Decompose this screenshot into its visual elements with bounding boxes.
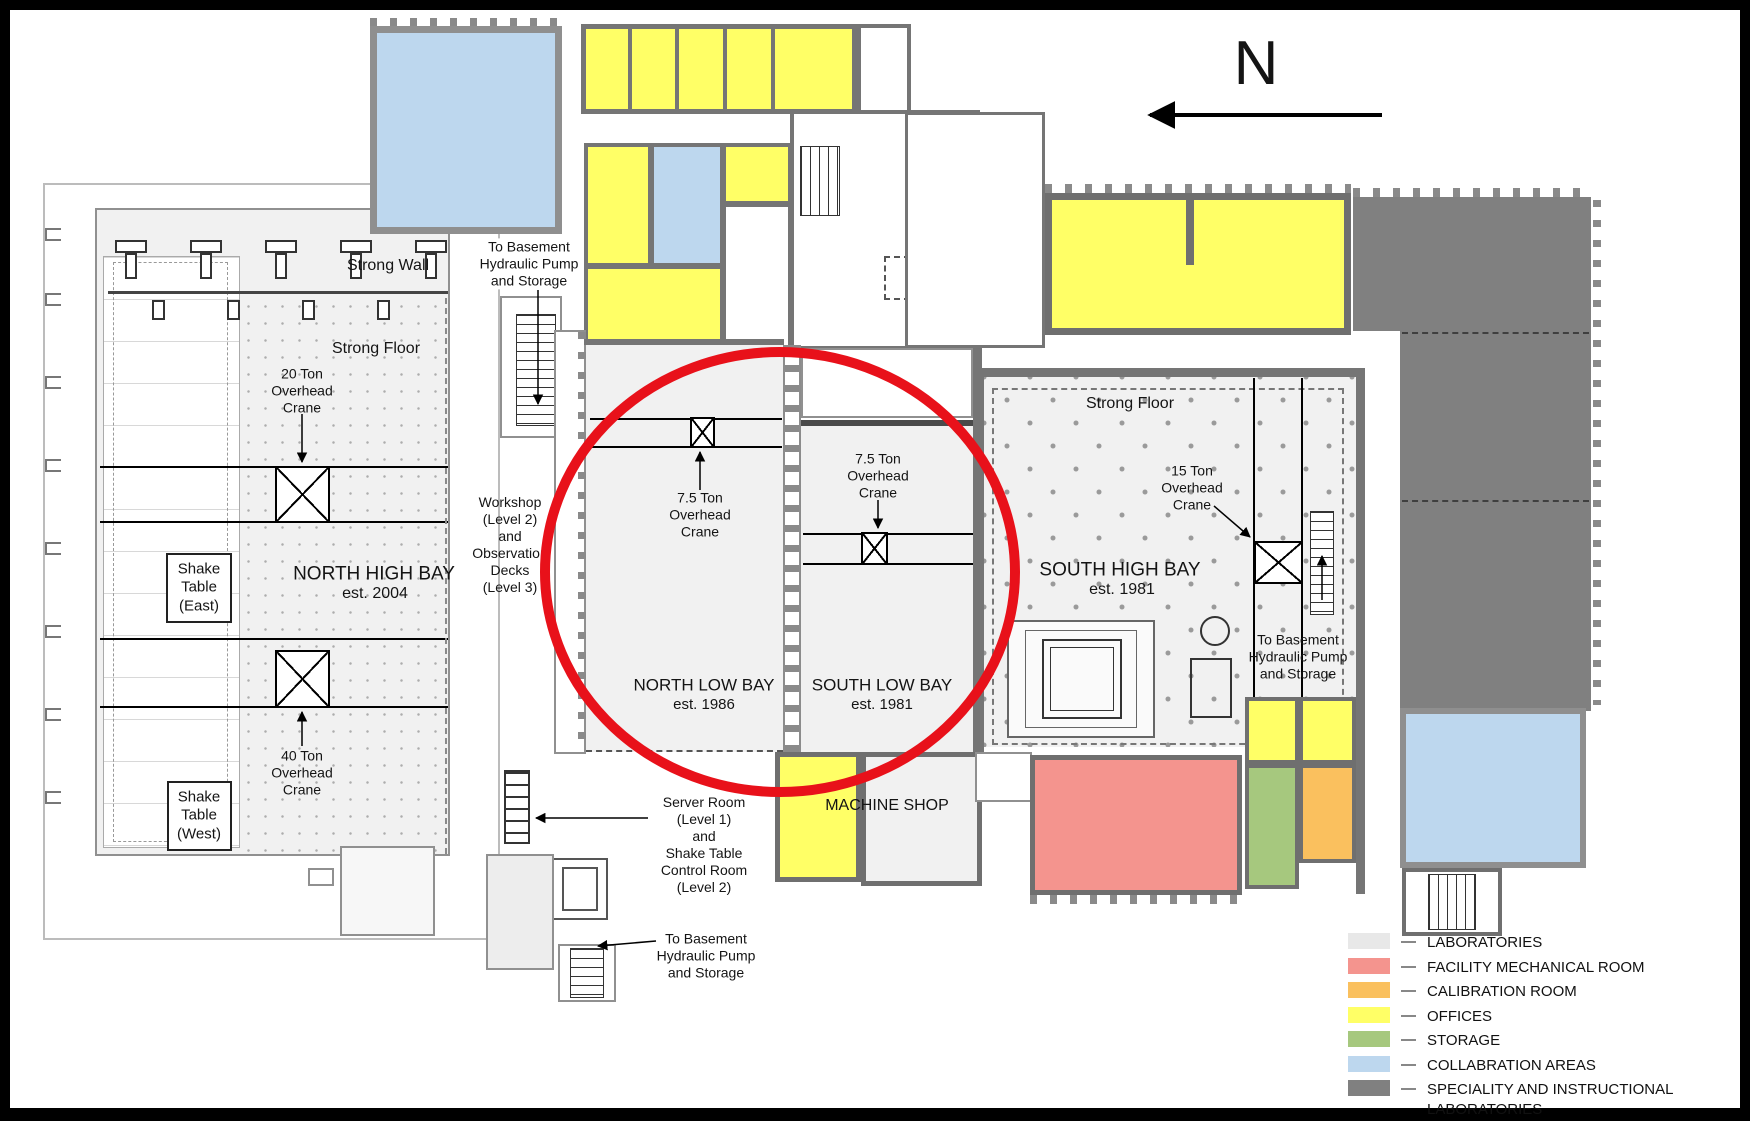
control-room-block [486,854,554,970]
crane-rail [803,533,973,535]
exterior-column [45,708,61,721]
exterior-column [45,625,61,638]
legend-separator: — [1401,1056,1416,1073]
crane-20-ton-label: 20 Ton Overhead Crane [271,365,332,416]
north-low-bay-name: NORTH LOW BAY [633,676,774,697]
office-room-machine-shop [775,752,861,882]
north-low-bay-est: est. 1986 [673,696,735,714]
speciality-lab-divider [1402,500,1589,502]
legend-swatch [1348,958,1390,974]
office-row [581,24,857,114]
wall-ticks [1030,895,1242,904]
strong-wall-line [108,291,448,294]
floor-post [227,300,240,320]
crane-rail [100,706,448,708]
office-divider [628,29,632,109]
legend-label: CALIBRATION ROOM [1427,982,1577,1002]
crane-trolley-7-5-ton-north [690,417,715,448]
south-high-bay-top-wall [975,368,1365,377]
floor-post [152,300,165,320]
legend-item: —COLLABRATION AREAS [1348,1056,1673,1076]
wall-ticks [1593,200,1601,705]
floor-post [302,300,315,320]
legend-label: COLLABRATION AREAS [1427,1056,1596,1076]
wall-column [190,240,222,253]
collaboration-room-top-left [370,26,562,234]
service-rooms-right [905,112,1045,348]
strong-wall-label: Strong Wall [347,256,429,276]
crane-rail [100,638,448,640]
legend-separator: — [1401,933,1416,950]
legend-item: —FACILITY MECHANICAL ROOM [1348,958,1673,978]
low-bay-opening [586,750,783,752]
legend-label: STORAGE [1427,1031,1500,1051]
office-room-small [1245,697,1299,764]
crane-rail [100,521,448,523]
crane-7-5-ton-south-label: 7.5 Ton Overhead Crane [847,450,908,501]
calibration-room [1299,764,1356,863]
floor-post [377,300,390,320]
wall-column [275,253,287,279]
crane-rail [590,446,782,448]
legend-item: —CALIBRATION ROOM [1348,982,1673,1002]
equipment-box [1190,658,1232,718]
utility-room-bottom [975,752,1032,802]
stairs-south-high-bay [1310,511,1334,615]
crane-trolley-40-ton [275,650,330,708]
utility-room-top [857,24,911,114]
crane-rail [803,563,973,565]
north-high-bay-name: NORTH HIGH BAY [293,562,455,585]
machine-shop-name: MACHINE SHOP [825,796,949,816]
workshop-note: Workshop (Level 2) and Observation Decks… [472,494,547,596]
compass-label: N [1234,26,1279,102]
south-low-bay-upper-rooms [801,348,973,418]
legend-item: —STORAGE [1348,1031,1673,1051]
shake-table-west-label: Shake Table (West) [177,789,221,844]
equipment-pit-core [1050,647,1114,711]
server-room-note: Server Room (Level 1) and Shake Table Co… [661,794,747,896]
lower-annex [340,846,435,936]
legend-separator: — [1401,1007,1416,1024]
basement-note-bottom: To Basement Hydraulic Pump and Storage [657,930,756,981]
wall-column [200,253,212,279]
legend-separator: — [1401,1080,1416,1097]
stairs-to-basement-top [516,314,556,426]
legend-swatch [1348,933,1390,949]
legend-swatch [1348,1007,1390,1023]
legend-label: OFFICES [1427,1007,1492,1027]
legend-label: FACILITY MECHANICAL ROOM [1427,958,1645,978]
server-rack [504,770,530,844]
office-divider [675,29,679,109]
crane-7-5-ton-north-label: 7.5 Ton Overhead Crane [669,489,730,540]
office-suite-wall-stub [1186,193,1194,265]
legend-item: —SPECIALITY AND INSTRUCTIONAL LABORATORI… [1348,1080,1673,1119]
office-divider [723,29,727,109]
office-room [584,143,652,267]
south-high-bay-left-wall [975,368,984,760]
utility-room-mid [722,203,792,349]
legend-label: LABORATORIES [1427,933,1542,953]
legend-label: SPECIALITY AND INSTRUCTIONAL LABORATORIE… [1427,1080,1673,1119]
legend-item: —LABORATORIES [1348,933,1673,953]
office-divider [771,29,775,109]
south-high-bay-right-wall [1356,368,1365,894]
wall-column [340,240,372,253]
shake-table-east-label: Shake Table (East) [178,561,221,616]
shake-table-runway-guide [113,262,228,842]
exterior-column [45,228,61,241]
speciality-labs-east [1400,331,1591,711]
legend-item: —OFFICES [1348,1007,1673,1027]
wall-column [115,240,147,253]
speciality-labs-north [1353,197,1591,331]
lower-annex-box [308,868,334,886]
wall-column [125,253,137,279]
exterior-column [45,459,61,472]
office-room-small [1299,697,1356,764]
office-room [584,265,724,349]
low-bay-divider-wall [783,345,801,752]
office-suite-top-right [1045,193,1351,335]
wall-column [265,240,297,253]
exterior-column [45,376,61,389]
wall-ticks [370,18,562,26]
exterior-column [45,542,61,555]
crane-trolley-7-5-ton-south [861,532,888,565]
north-high-bay-est: est. 2004 [342,584,408,604]
facility-mechanical-room [1030,755,1242,895]
basement-note-top: To Basement Hydraulic Pump and Storage [480,238,579,289]
legend-swatch [1348,1080,1390,1096]
collaboration-corridor [650,143,724,267]
elevator-car [562,867,598,911]
crane-40-ton-label: 40 Ton Overhead Crane [271,747,332,798]
strong-floor-north-label: Strong Floor [332,339,420,359]
wall-ticks [1353,188,1591,197]
legend-separator: — [1401,982,1416,999]
wall-column [415,240,447,253]
collaboration-room-bottom-right [1400,708,1586,868]
stairs-mid [800,146,840,216]
legend-swatch [1348,1056,1390,1072]
wall-ticks [578,332,586,752]
crane-trolley-15-ton [1254,541,1303,584]
speciality-lab-divider [1402,332,1589,334]
exterior-column [45,791,61,804]
crane-trolley-20-ton [275,466,330,523]
stairs-to-basement-bottom [570,948,604,998]
legend-separator: — [1401,1031,1416,1048]
exterior-column [45,293,61,306]
strong-floor-south-label: Strong Floor [1086,394,1174,414]
machine-shop-room [861,752,982,886]
office-room [722,143,792,205]
south-low-bay-name: SOUTH LOW BAY [812,676,952,697]
basement-note-right: To Basement Hydraulic Pump and Storage [1249,631,1348,682]
crane-rail [590,418,782,420]
legend: —LABORATORIES—FACILITY MECHANICAL ROOM—C… [1348,933,1673,1121]
south-high-bay-name: SOUTH HIGH BAY [1039,558,1200,581]
stairs-bottom-right [1428,874,1476,930]
south-low-bay-est: est. 1981 [851,696,913,714]
wall-ticks [1045,184,1351,193]
crane-rail [100,466,448,468]
storage-room [1245,764,1299,889]
equipment-circle [1200,616,1230,646]
south-high-bay-est: est. 1981 [1089,580,1155,600]
legend-swatch [1348,1031,1390,1047]
legend-swatch [1348,982,1390,998]
floor-plan: N Strong Wall Strong Floor 20 Ton Overhe… [0,0,1750,1121]
crane-15-ton-label: 15 Ton Overhead Crane [1161,462,1222,513]
legend-separator: — [1401,958,1416,975]
